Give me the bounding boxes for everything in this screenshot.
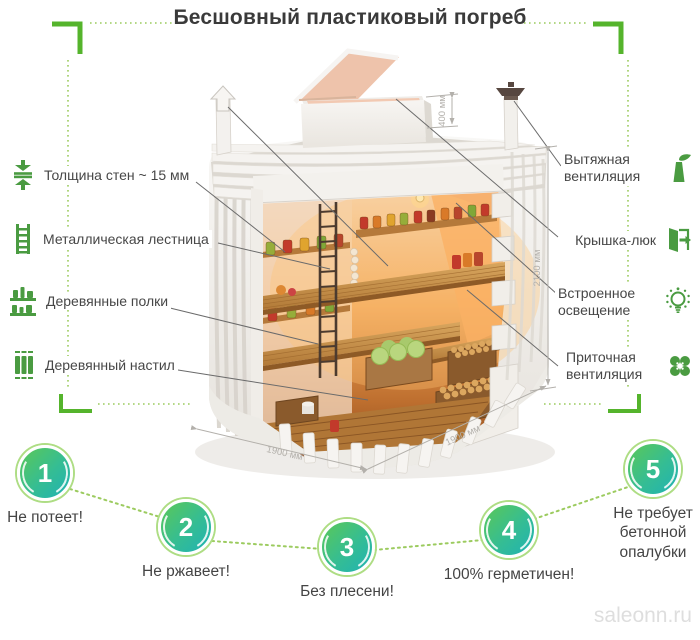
exhaust-vent-icon	[666, 153, 692, 183]
feature-wooden-shelves: Деревянные полки	[10, 286, 171, 316]
benefit-number: 5	[646, 456, 660, 482]
feature-label: Вытяжная вентиляция	[561, 150, 659, 186]
benefit-label: 100% герметичен!	[444, 565, 575, 584]
built-in-light-icon	[664, 287, 692, 317]
benefit-number: 3	[340, 534, 354, 560]
benefit-5-badge: 5	[625, 441, 681, 497]
feature-wall-thickness: Толщина стен ~ 15 мм	[12, 160, 192, 190]
benefit-number: 1	[38, 460, 52, 486]
wooden-decking-icon	[13, 350, 35, 380]
benefit-label: Не требует бетонной опалубки	[601, 504, 700, 562]
feature-supply-vent: Приточная вентиляция	[563, 348, 692, 384]
feature-built-in-light: Встроенное освещение	[555, 284, 692, 320]
feature-label: Приточная вентиляция	[563, 348, 661, 384]
benefit-number: 4	[502, 517, 516, 543]
feature-metal-ladder: Металлическая лестница	[13, 224, 212, 254]
benefit-4: 4 100% герметичен!	[429, 502, 589, 584]
feature-label: Деревянные полки	[43, 292, 171, 311]
hatch-lid-open	[295, 50, 399, 102]
benefit-3-badge: 3	[319, 519, 375, 575]
benefit-number: 2	[179, 514, 193, 540]
feature-exhaust-vent: Вытяжная вентиляция	[561, 150, 692, 186]
dimension-inner-height: 2100 мм	[532, 250, 543, 287]
feature-hatch-cover: Крышка-люк	[572, 226, 692, 254]
infographic-plastic-cellar: 400 мм 2100 мм 1900 мм 1900 мм Бесшовный…	[0, 0, 700, 640]
wooden-shelves-icon	[10, 286, 36, 316]
feature-label: Крышка-люк	[572, 231, 659, 250]
feature-wooden-decking: Деревянный настил	[13, 350, 178, 380]
benefit-5: 5 Не требует бетонной опалубки	[573, 441, 700, 562]
watermark: saleonn.ru	[594, 604, 692, 628]
feature-label: Деревянный настил	[42, 356, 178, 375]
benefit-2-badge: 2	[158, 499, 214, 555]
hatch-cover-icon	[666, 226, 692, 254]
feature-label: Встроенное освещение	[555, 284, 657, 320]
page-title: Бесшовный пластиковый погреб	[0, 6, 700, 30]
supply-vent-icon	[668, 354, 692, 378]
benefit-2: 2 Не ржавеет!	[106, 499, 266, 581]
feature-label: Толщина стен ~ 15 мм	[41, 166, 192, 185]
benefit-1-badge: 1	[17, 445, 73, 501]
benefit-3: 3 Без плесени!	[267, 519, 427, 601]
benefit-label: Не ржавеет!	[142, 562, 230, 581]
wall-thickness-icon	[12, 160, 34, 190]
benefit-label: Без плесени!	[300, 582, 394, 601]
cellar-body	[195, 50, 555, 479]
benefit-label: Не потеет!	[7, 508, 83, 527]
feature-label: Металлическая лестница	[40, 230, 212, 249]
benefit-4-badge: 4	[481, 502, 537, 558]
hatch-neck	[301, 96, 433, 148]
metal-ladder-icon	[13, 224, 33, 254]
dimension-lid-height: 400 мм	[437, 95, 448, 127]
